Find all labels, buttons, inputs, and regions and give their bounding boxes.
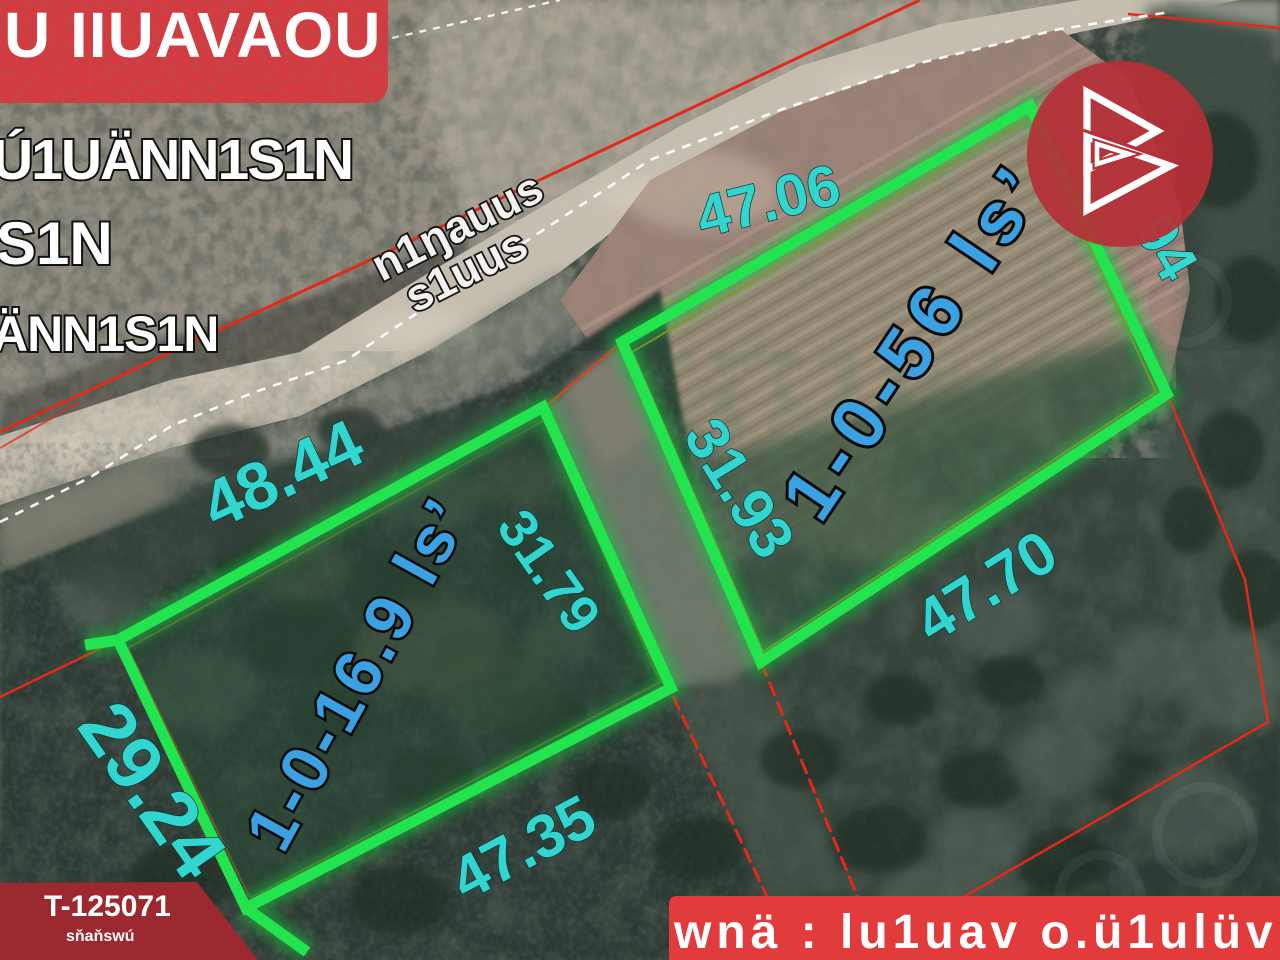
- svg-text:T-125071: T-125071: [44, 890, 171, 923]
- svg-text:U IIUAVAOU: U IIUAVAOU: [4, 0, 381, 71]
- svg-text:wnä : lu1uav o.ü1ulüv: wnä : lu1uav o.ü1ulüv: [673, 906, 1278, 959]
- svg-text:S1N: S1N: [0, 210, 113, 277]
- svg-text:sňaňswú: sňaňswú: [66, 928, 134, 945]
- svg-text:Ú1UÄNN1S1N: Ú1UÄNN1S1N: [0, 128, 352, 192]
- svg-text:ÄNN1S1N: ÄNN1S1N: [0, 306, 218, 362]
